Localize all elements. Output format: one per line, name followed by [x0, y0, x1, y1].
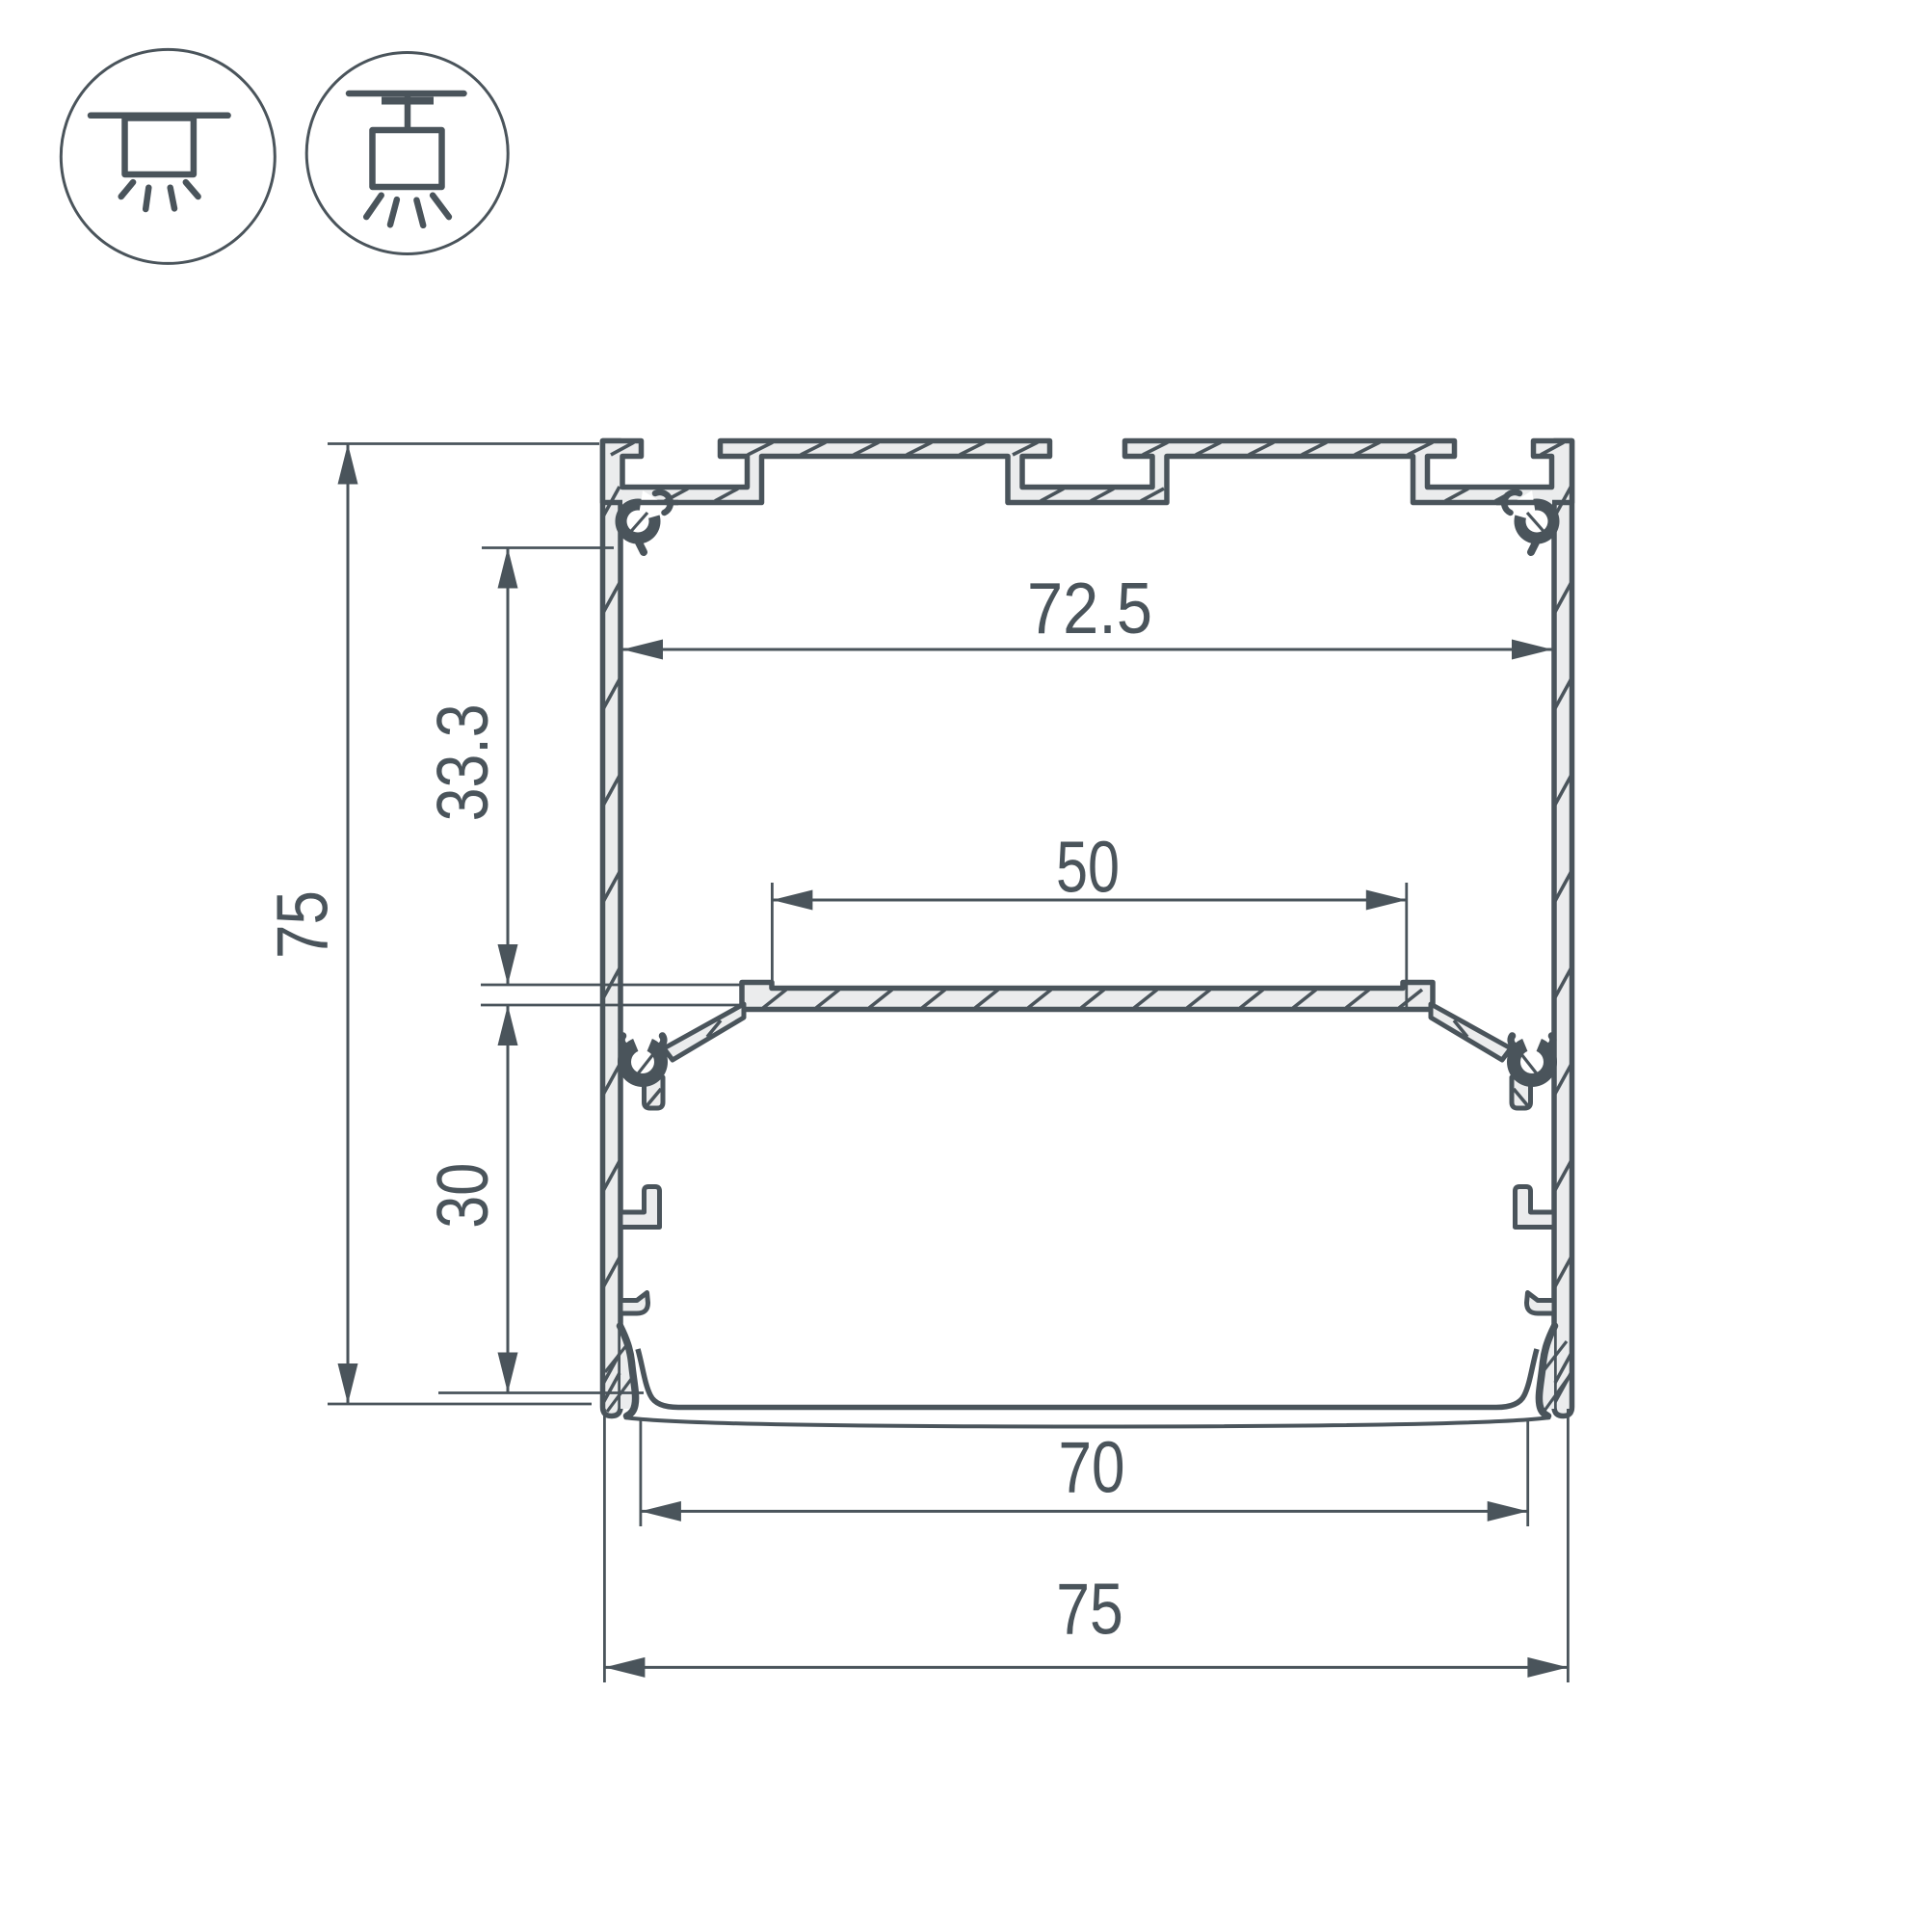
svg-text:30: 30 — [422, 1163, 503, 1229]
svg-text:75: 75 — [1056, 1568, 1123, 1649]
svg-text:75: 75 — [261, 890, 342, 959]
svg-text:72.5: 72.5 — [1027, 568, 1152, 648]
svg-text:70: 70 — [1059, 1426, 1125, 1507]
svg-text:50: 50 — [1056, 827, 1120, 908]
svg-text:33.3: 33.3 — [422, 703, 503, 821]
